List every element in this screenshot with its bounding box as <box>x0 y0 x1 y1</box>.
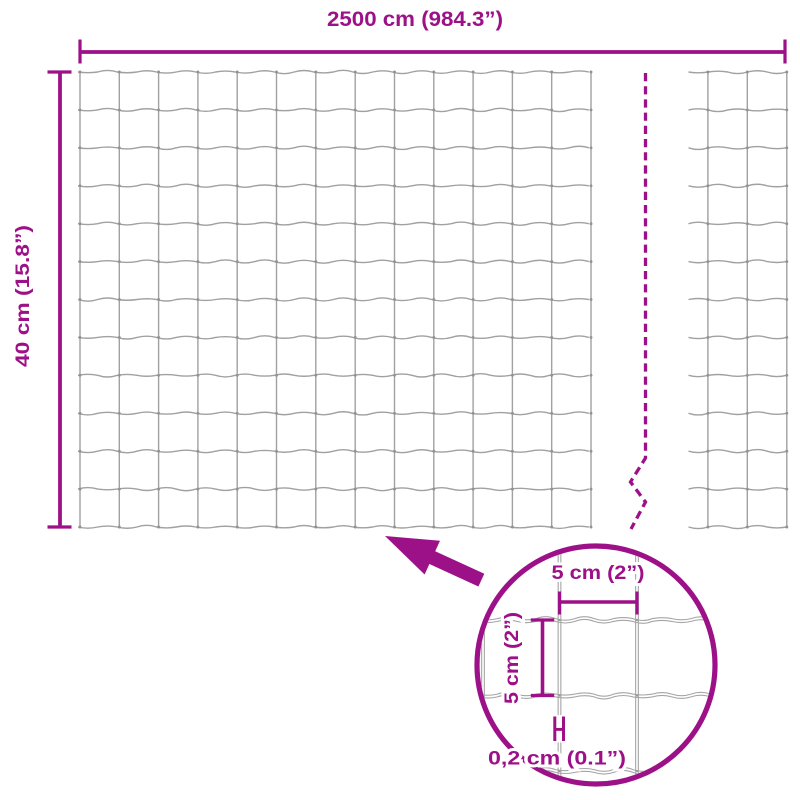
svg-text:5 cm (2”): 5 cm (2”) <box>552 562 645 584</box>
svg-text:40 cm (15.8”): 40 cm (15.8”) <box>12 225 34 367</box>
svg-text:5 cm (2”): 5 cm (2”) <box>501 612 523 704</box>
svg-text:2500 cm (984.3”): 2500 cm (984.3”) <box>327 7 503 31</box>
svg-text:0,2 cm (0.1”): 0,2 cm (0.1”) <box>488 748 626 770</box>
